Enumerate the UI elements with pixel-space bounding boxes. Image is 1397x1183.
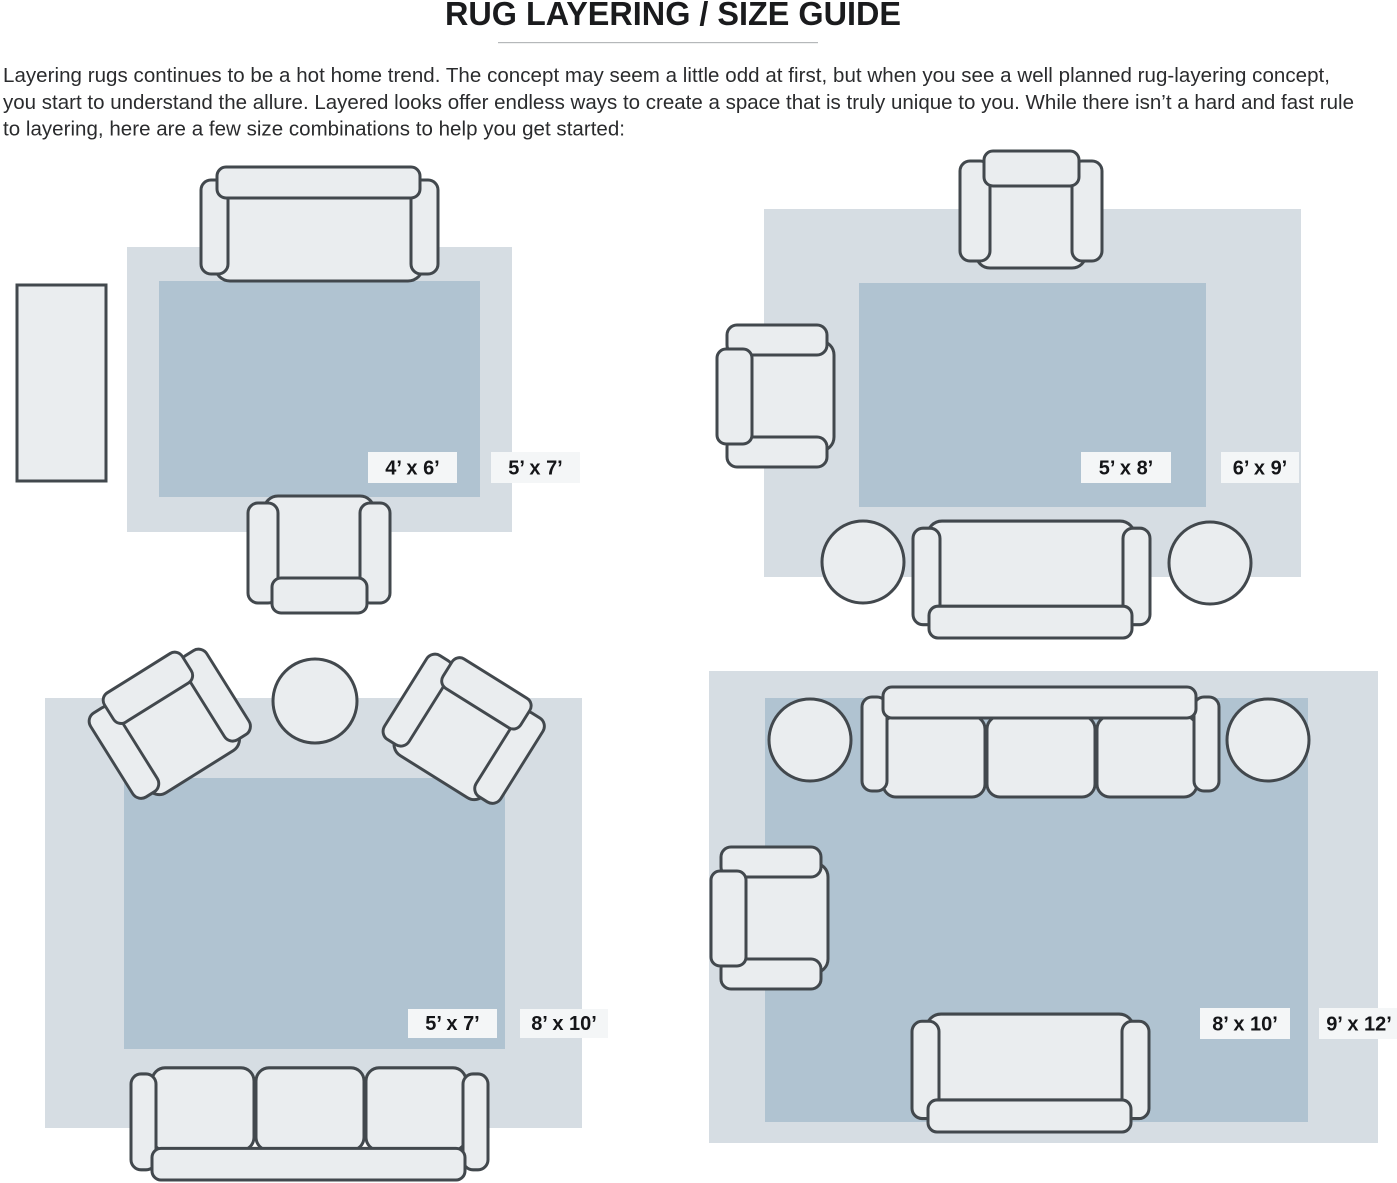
svg-text:you start to understand the al: you start to understand the allure. Laye…	[3, 91, 1354, 114]
svg-text:RUG LAYERING / SIZE GUIDE: RUG LAYERING / SIZE GUIDE	[445, 0, 901, 32]
svg-text:to layering, here are a few si: to layering, here are a few size combina…	[3, 118, 625, 141]
svg-text:8’ x 10’: 8’ x 10’	[531, 1013, 597, 1035]
svg-text:6’ x 9’: 6’ x 9’	[1233, 458, 1288, 480]
svg-text:5’ x 7’: 5’ x 7’	[425, 1013, 480, 1035]
svg-text:8’ x 10’: 8’ x 10’	[1212, 1014, 1278, 1036]
svg-text:9’ x 12’: 9’ x 12’	[1326, 1014, 1392, 1036]
svg-text:4’ x 6’: 4’ x 6’	[385, 458, 440, 480]
svg-text:Layering rugs continues to be: Layering rugs continues to be a hot home…	[3, 64, 1330, 87]
svg-text:5’ x 8’: 5’ x 8’	[1099, 458, 1154, 480]
svg-text:5’ x 7’: 5’ x 7’	[508, 458, 563, 480]
